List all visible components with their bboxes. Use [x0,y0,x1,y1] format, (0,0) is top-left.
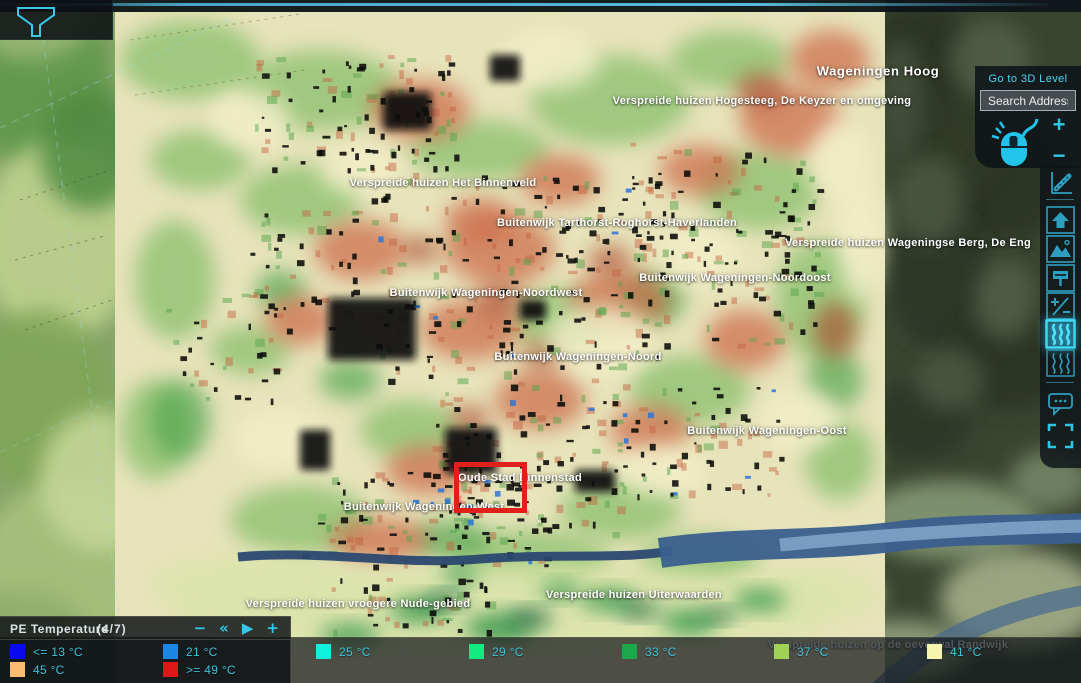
go-to-3d-button[interactable]: Go to 3D Level [975,73,1081,85]
tool-basemap-button[interactable] [1045,234,1076,264]
tool-measure-button[interactable] [1045,168,1076,198]
app-logo [0,0,113,40]
map-art [0,0,1081,683]
legend-controls: −«▶+ [194,619,279,637]
top-accent-line [0,3,1049,6]
legend-control-play[interactable]: ▶ [242,619,254,637]
legend-title: PE Temperature [10,622,108,636]
app-window: Wageningen HoogVerspreide huizen Hogeste… [0,0,1081,683]
legend-control-minus[interactable]: − [194,619,207,637]
logo-icon [8,3,64,39]
legend-divider [0,639,290,640]
tool-comments-button[interactable] [1045,389,1076,419]
zoom-in-button[interactable]: + [1046,113,1072,139]
tool-heatmap-alt-button[interactable] [1045,348,1076,378]
tool-fullscreen-button[interactable] [1045,421,1076,451]
selection-rectangle [454,462,527,513]
search-address-input[interactable] [980,90,1076,111]
sidebar-divider [1046,199,1074,200]
mouse-mode-icon [987,114,1039,168]
map-canvas[interactable] [0,0,1081,683]
tool-plus-minus-button[interactable] [1045,291,1076,321]
legend-control-plus[interactable]: + [266,619,279,637]
legend-page-indicator: (4/7) [97,622,127,636]
legend-control-skip-back[interactable]: « [219,619,229,637]
map-control-panel: Go to 3D Level + − [975,66,1081,168]
tool-home-button[interactable] [1045,205,1076,235]
tool-sidebar [1040,166,1081,468]
sidebar-divider [1046,382,1074,383]
tool-heatmap-button[interactable] [1045,319,1076,349]
top-bar [0,0,1081,12]
tool-billboard-button[interactable] [1045,263,1076,293]
legend-panel: PE Temperature (4/7) −«▶+ [0,616,291,683]
